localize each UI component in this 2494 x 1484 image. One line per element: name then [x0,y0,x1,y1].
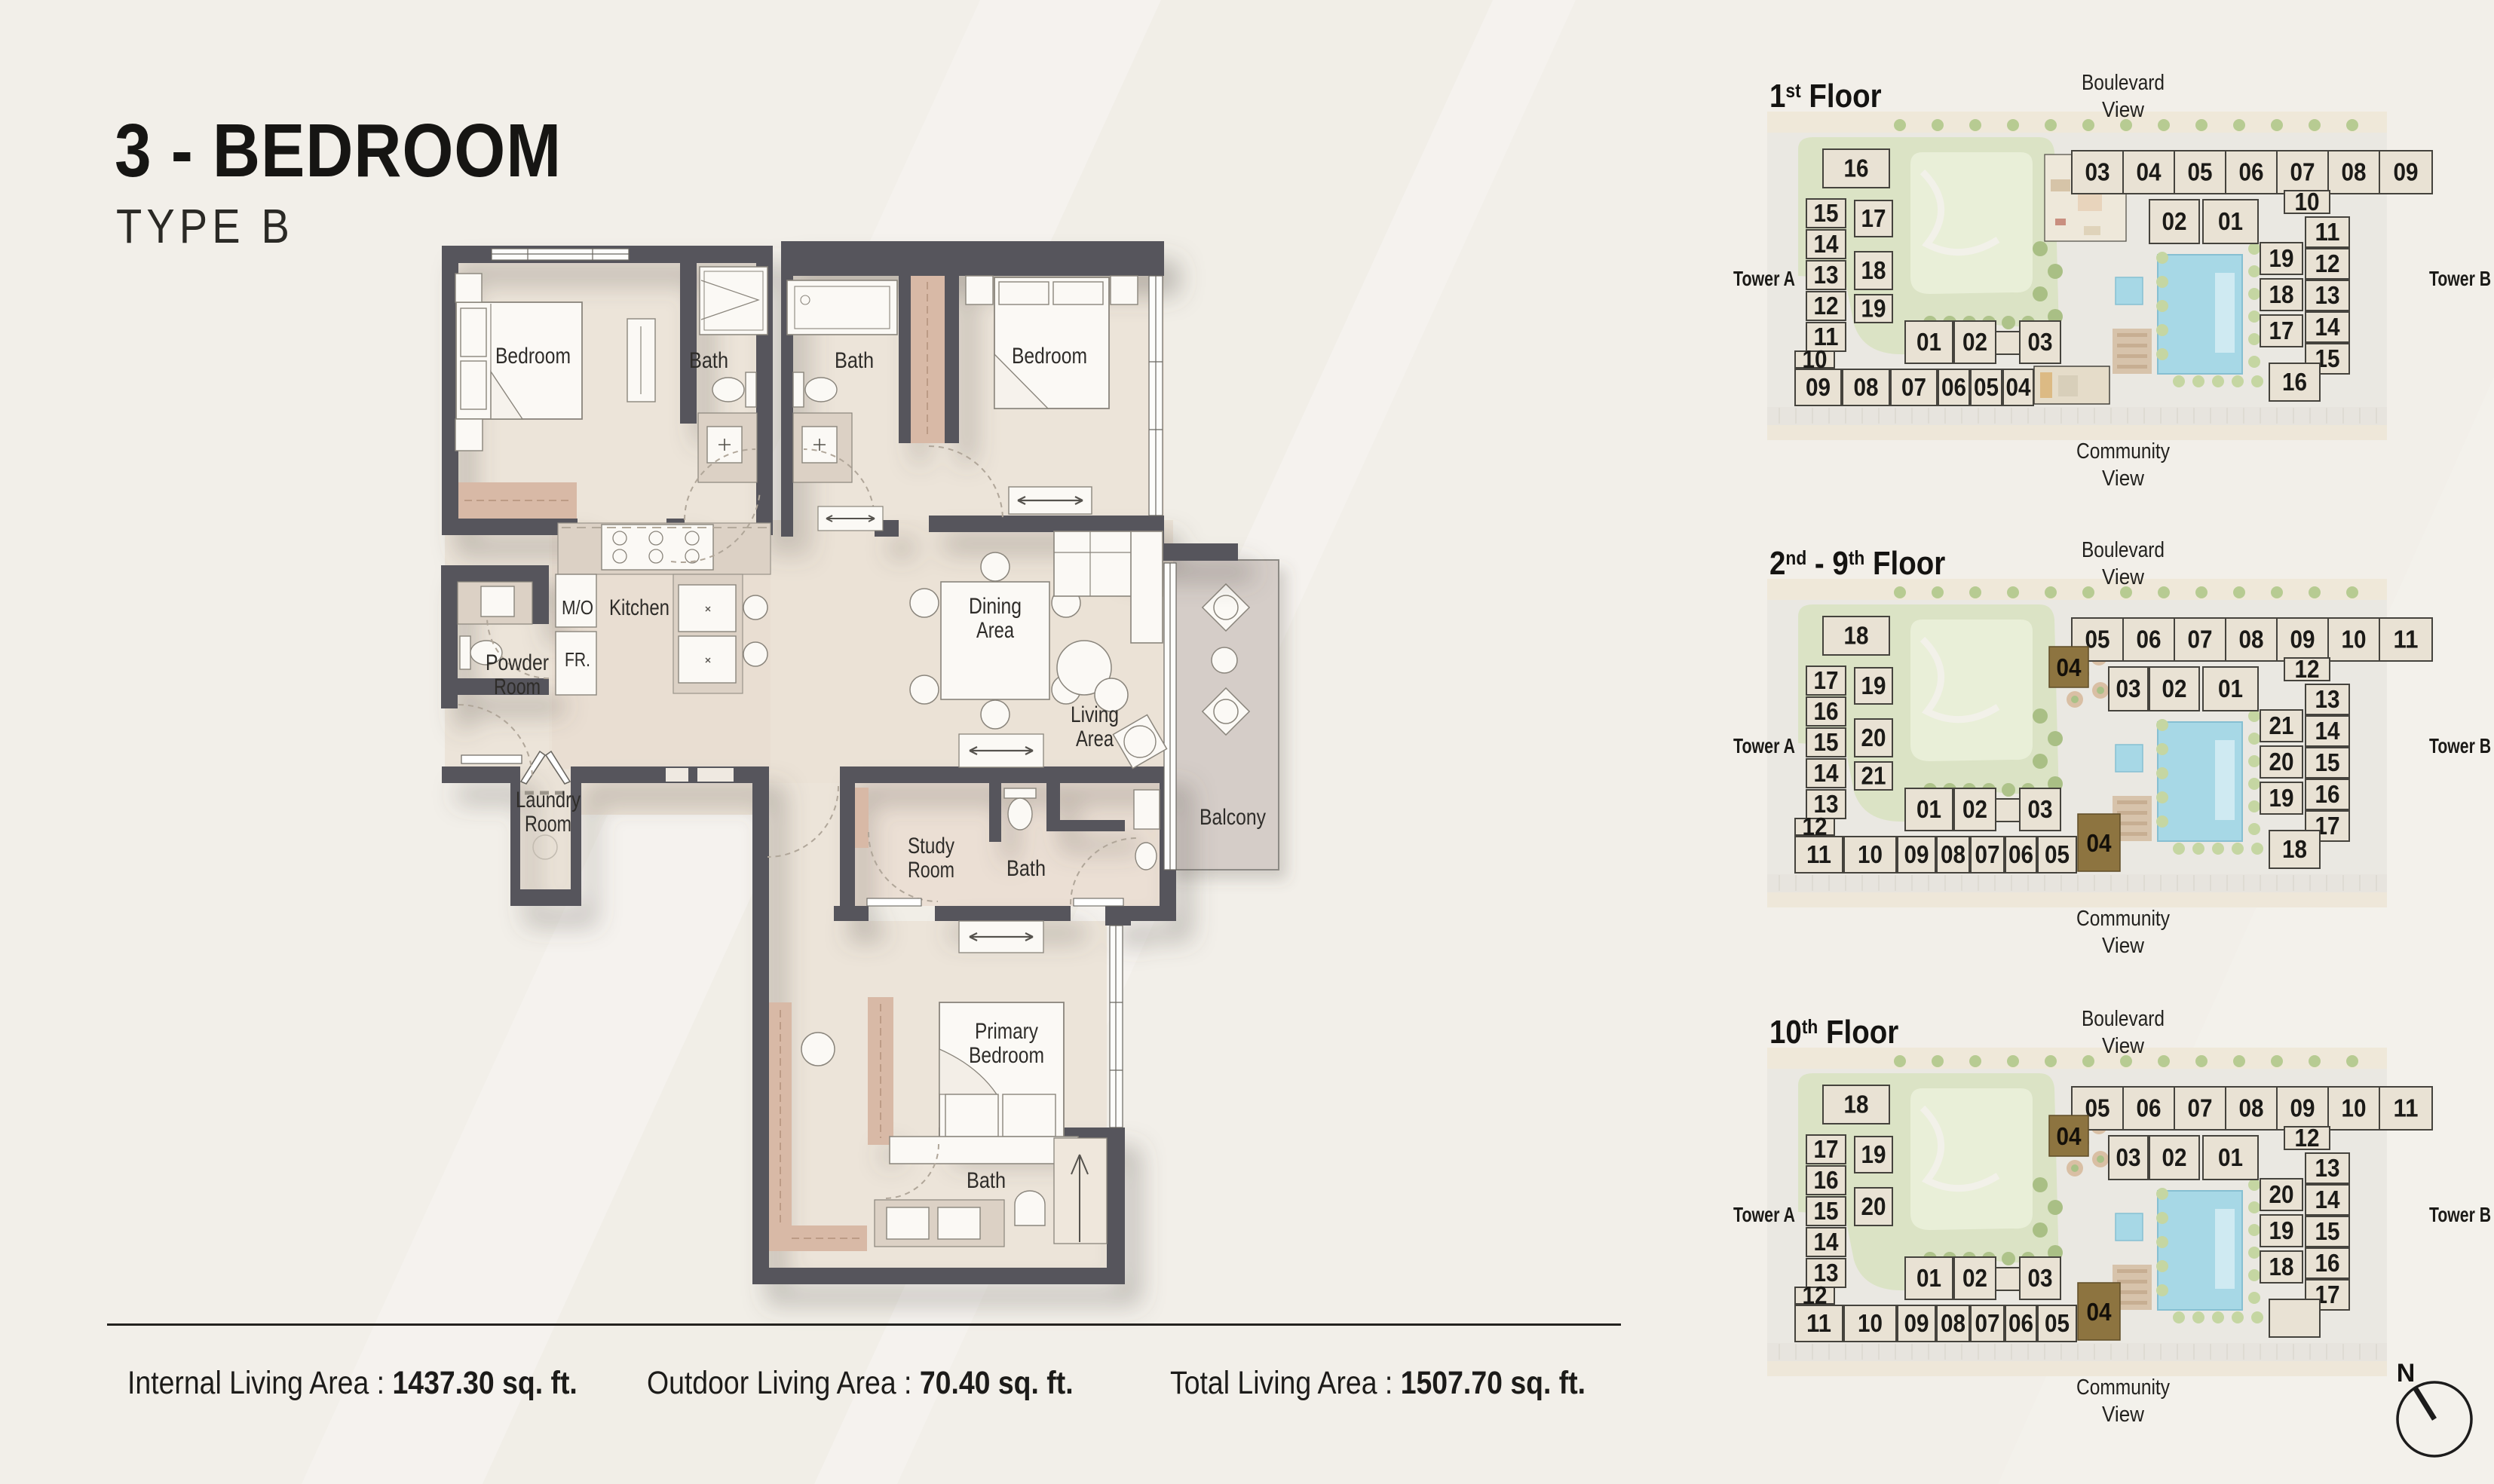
svg-text:Boulevard: Boulevard [2082,538,2165,562]
svg-text:11: 11 [2394,1094,2419,1122]
svg-text:18: 18 [2282,835,2307,863]
svg-text:09: 09 [2290,1094,2315,1122]
svg-text:12: 12 [1814,292,1839,320]
svg-text:11: 11 [2394,626,2419,653]
svg-text:View: View [2102,565,2145,589]
svg-text:19: 19 [1861,672,1886,699]
svg-text:07: 07 [1975,1309,2000,1337]
svg-text:10: 10 [1858,840,1883,868]
svg-text:View: View [2102,934,2145,958]
svg-text:07: 07 [1901,373,1926,401]
svg-text:18: 18 [1844,1091,1869,1118]
svg-text:16: 16 [2315,1249,2340,1277]
svg-text:15: 15 [2315,748,2340,776]
svg-text:07: 07 [2290,158,2315,186]
svg-text:01: 01 [2218,1143,2243,1171]
svg-text:Tower B: Tower B [2429,734,2491,757]
svg-text:02: 02 [2162,207,2187,235]
svg-text:01: 01 [2218,675,2243,702]
svg-text:03: 03 [2028,795,2053,823]
svg-text:07: 07 [2188,626,2213,653]
svg-text:04: 04 [2057,1122,2082,1150]
svg-text:15: 15 [2315,1217,2340,1245]
svg-text:01: 01 [1916,795,1941,823]
svg-text:08: 08 [1941,840,1965,868]
svg-text:08: 08 [2239,626,2264,653]
svg-text:20: 20 [2269,748,2294,776]
svg-text:05: 05 [2045,840,2070,868]
svg-text:06: 06 [2239,158,2264,186]
svg-text:01: 01 [2218,207,2243,235]
svg-text:19: 19 [2269,244,2294,272]
svg-text:17: 17 [1861,204,1886,232]
svg-text:14: 14 [1814,1228,1840,1256]
svg-text:02: 02 [1962,328,1987,356]
svg-text:03: 03 [2085,158,2110,186]
svg-text:19: 19 [2269,784,2294,812]
svg-text:04: 04 [2087,829,2113,857]
svg-text:View: View [2102,1403,2145,1427]
svg-text:16: 16 [2315,780,2340,808]
svg-text:08: 08 [1941,1309,1965,1337]
svg-text:03: 03 [2028,1264,2053,1292]
svg-text:19: 19 [1861,1140,1886,1168]
svg-text:08: 08 [2342,158,2367,186]
svg-text:06: 06 [2137,626,2162,653]
svg-text:10: 10 [2342,626,2367,653]
svg-text:16: 16 [2282,368,2307,396]
svg-text:17: 17 [2269,317,2294,344]
svg-text:Tower A: Tower A [1733,1203,1795,1226]
svg-text:13: 13 [2315,1154,2340,1182]
svg-text:Boulevard: Boulevard [2082,71,2165,95]
svg-text:15: 15 [1814,1197,1839,1225]
svg-text:10: 10 [2342,1094,2367,1122]
svg-text:06: 06 [1941,373,1966,401]
svg-text:Community: Community [2076,907,2170,931]
svg-text:11: 11 [1806,1309,1831,1337]
svg-text:11: 11 [2315,218,2340,246]
svg-text:Community: Community [2076,1375,2170,1400]
svg-text:03: 03 [2116,1143,2141,1171]
svg-text:01: 01 [1916,1264,1941,1292]
svg-text:N: N [2397,1359,2416,1388]
svg-text:15: 15 [1814,728,1839,756]
svg-text:07: 07 [2188,1094,2213,1122]
svg-text:08: 08 [2239,1094,2264,1122]
svg-text:19: 19 [1861,295,1886,323]
svg-text:15: 15 [1814,199,1839,227]
svg-text:12: 12 [2295,655,2320,683]
svg-text:18: 18 [2269,280,2294,308]
svg-text:05: 05 [2045,1309,2070,1337]
svg-text:02: 02 [2162,675,2187,702]
svg-text:14: 14 [1814,759,1840,787]
svg-text:06: 06 [2008,1309,2033,1337]
svg-text:13: 13 [2315,685,2340,713]
svg-text:04: 04 [2006,373,2032,401]
svg-text:03: 03 [2116,675,2141,702]
svg-text:17: 17 [1814,666,1839,694]
svg-text:14: 14 [2315,313,2341,341]
svg-text:View: View [2102,98,2145,122]
svg-text:Tower B: Tower B [2429,267,2491,290]
svg-text:09: 09 [2394,158,2419,186]
svg-text:02: 02 [1962,795,1987,823]
svg-text:10: 10 [2295,188,2320,216]
svg-text:12: 12 [2295,1124,2320,1152]
svg-text:14: 14 [1814,230,1840,258]
svg-text:10: 10 [1858,1309,1883,1337]
svg-text:09: 09 [1904,1309,1929,1337]
svg-text:View: View [2102,467,2145,491]
svg-text:04: 04 [2057,653,2082,681]
svg-text:Tower B: Tower B [2429,1203,2491,1226]
svg-text:14: 14 [2315,717,2341,745]
svg-text:06: 06 [2137,1094,2162,1122]
svg-text:13: 13 [2315,281,2340,309]
svg-text:06: 06 [2008,840,2033,868]
svg-text:04: 04 [2137,158,2162,186]
svg-text:21: 21 [2269,711,2294,739]
svg-text:01: 01 [1916,328,1941,356]
svg-text:12: 12 [2315,249,2340,277]
svg-text:17: 17 [1814,1135,1839,1163]
svg-text:View: View [2102,1034,2145,1058]
svg-text:16: 16 [1844,155,1869,182]
svg-text:05: 05 [2188,158,2213,186]
svg-text:18: 18 [1861,256,1886,284]
svg-text:09: 09 [1806,373,1831,401]
svg-text:08: 08 [1854,373,1879,401]
svg-text:16: 16 [1814,697,1839,725]
svg-text:16: 16 [1814,1166,1839,1194]
svg-text:19: 19 [2269,1216,2294,1244]
svg-text:14: 14 [2315,1186,2341,1213]
svg-text:09: 09 [2290,626,2315,653]
svg-text:04: 04 [2087,1298,2113,1326]
svg-text:20: 20 [1861,724,1886,751]
svg-text:02: 02 [1962,1264,1987,1292]
svg-text:Boulevard: Boulevard [2082,1007,2165,1031]
svg-text:20: 20 [2269,1180,2294,1208]
svg-text:20: 20 [1861,1192,1886,1220]
svg-text:11: 11 [1806,840,1831,868]
svg-text:07: 07 [1975,840,2000,868]
svg-text:18: 18 [1844,622,1869,650]
svg-text:18: 18 [2269,1253,2294,1281]
svg-text:21: 21 [1861,762,1886,790]
svg-text:05: 05 [1974,373,1999,401]
svg-text:13: 13 [1814,261,1839,289]
svg-text:09: 09 [1904,840,1929,868]
svg-text:02: 02 [2162,1143,2187,1171]
svg-text:Tower A: Tower A [1733,734,1795,757]
svg-text:Community: Community [2076,439,2170,464]
svg-text:03: 03 [2028,328,2053,356]
svg-text:Tower A: Tower A [1733,267,1795,290]
